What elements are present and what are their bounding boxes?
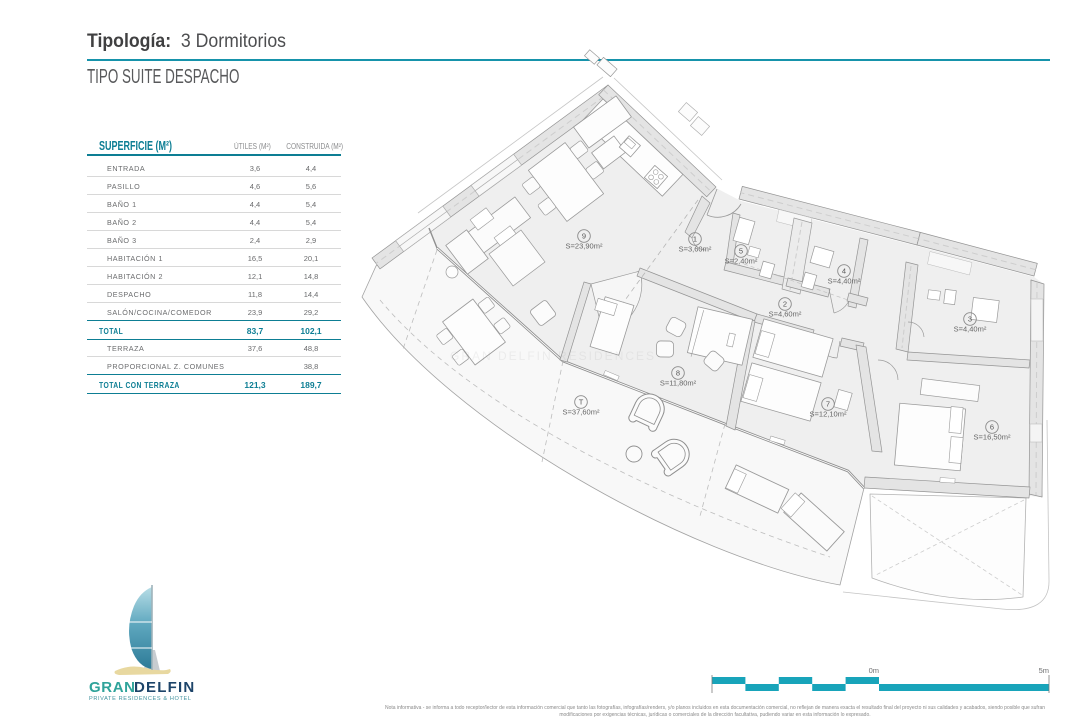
svg-text:S=16,50m²: S=16,50m² xyxy=(974,433,1011,442)
svg-text:3: 3 xyxy=(968,315,972,324)
svg-text:0m: 0m xyxy=(869,666,879,675)
svg-text:T: T xyxy=(579,398,584,407)
svg-text:GRAN: GRAN xyxy=(89,679,136,696)
svg-text:5: 5 xyxy=(739,247,743,256)
svg-text:9: 9 xyxy=(582,232,586,241)
svg-text:S=2,40m²: S=2,40m² xyxy=(725,257,758,266)
svg-text:S=4,40m²: S=4,40m² xyxy=(828,277,861,286)
svg-text:S=4,40m²: S=4,40m² xyxy=(954,325,987,334)
svg-text:S=3,60m²: S=3,60m² xyxy=(679,245,712,254)
svg-text:PRIVATE RESIDENCES & HOTEL: PRIVATE RESIDENCES & HOTEL xyxy=(89,696,192,702)
svg-text:S=4,60m²: S=4,60m² xyxy=(769,310,802,319)
svg-text:4: 4 xyxy=(842,267,846,276)
svg-text:S=12,10m²: S=12,10m² xyxy=(810,410,847,419)
svg-text:2: 2 xyxy=(783,300,787,309)
svg-text:GRAN DELFIN RESIDENCES: GRAN DELFIN RESIDENCES xyxy=(450,349,656,363)
svg-text:1: 1 xyxy=(693,235,697,244)
svg-text:DELFIN: DELFIN xyxy=(134,679,195,696)
svg-text:6: 6 xyxy=(990,423,994,432)
svg-text:5m: 5m xyxy=(1039,666,1049,675)
svg-text:S=11,80m²: S=11,80m² xyxy=(660,379,697,388)
svg-text:S=23,90m²: S=23,90m² xyxy=(566,242,603,251)
svg-text:S=37,60m²: S=37,60m² xyxy=(563,408,600,417)
svg-text:8: 8 xyxy=(676,369,680,378)
svg-text:7: 7 xyxy=(826,400,830,409)
